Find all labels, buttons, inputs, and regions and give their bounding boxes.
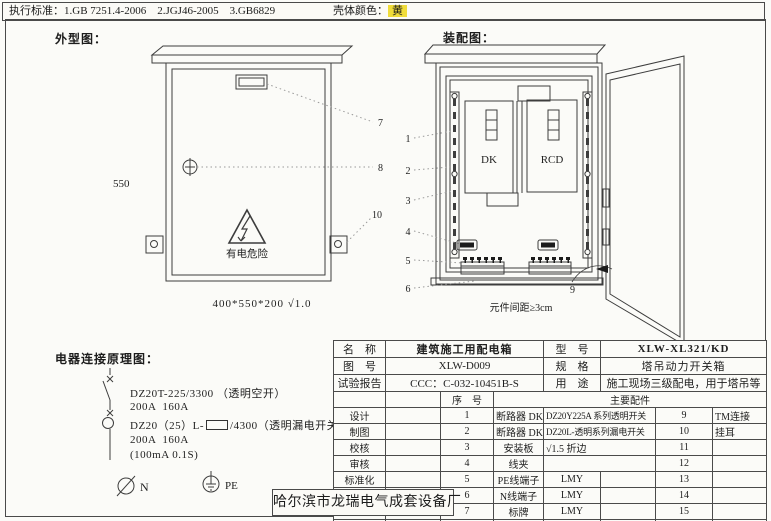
cabinet-roof xyxy=(425,45,605,63)
part-desc: LMY xyxy=(544,504,601,520)
cabinet-door xyxy=(603,56,684,345)
n-terminal-symbol xyxy=(117,476,135,496)
part-no: 4 xyxy=(441,456,494,472)
test-report-value: CCC：C-032-10451B-S xyxy=(386,375,544,392)
leader-lines xyxy=(414,131,475,288)
part-desc: LMY xyxy=(544,488,601,504)
blank-cell xyxy=(386,408,441,424)
blank-cell xyxy=(386,392,441,408)
part-no: 13 xyxy=(656,472,713,488)
test-report-label: 试验报告 xyxy=(334,375,386,392)
part-no: 3 xyxy=(441,440,494,456)
callout-10: 10 xyxy=(372,210,382,221)
schematic-line-1: DZ20T-225/3300 （透明空开） xyxy=(130,385,286,401)
terminal-block-right xyxy=(529,257,571,274)
standards-value: 1.GB 7251.4-2006 2.JGJ46-2005 3.GB6829 xyxy=(64,5,275,17)
schematic-line-3-suffix: /4300（透明漏电开关） xyxy=(230,420,350,432)
part-name: 线夹 xyxy=(494,456,544,472)
callout-2: 2 xyxy=(406,166,411,177)
meter-window xyxy=(236,75,267,89)
callout-7: 7 xyxy=(378,118,383,129)
part-name: 断路器 DK xyxy=(494,424,544,440)
part-desc: √1.5 折边 xyxy=(544,440,656,456)
callout-1: 1 xyxy=(406,134,411,145)
callout-8: 8 xyxy=(378,163,383,174)
part-no: 11 xyxy=(656,440,713,456)
seq-header: 序 号 xyxy=(441,392,494,408)
spacing-note: 元件间距≥3cm xyxy=(490,301,553,314)
middle-rail xyxy=(517,86,550,193)
part-desc xyxy=(713,472,767,488)
height-dimension: 550 xyxy=(113,178,130,190)
table-row: 标准化 5 PE线端子 LMY 13 xyxy=(334,472,767,488)
parts-header: 主要配件 xyxy=(494,392,767,408)
part-name: N线端子 xyxy=(494,488,544,504)
rcd-symbol xyxy=(103,418,114,429)
model-label: 型 号 xyxy=(544,341,601,358)
drawing-no-label: 图 号 xyxy=(334,358,386,375)
shell-color-text: 壳体颜色：黄 xyxy=(333,3,407,20)
manufacturer-name: 哈尔滨市龙瑞电气成套设备厂 xyxy=(272,489,454,516)
blank-cell xyxy=(386,440,441,456)
part-desc: DZ20L-透明系列漏电开关 xyxy=(544,424,656,440)
sign-label: 标准化 xyxy=(334,472,386,488)
part-no: 2 xyxy=(441,424,494,440)
shell-color-value: 黄 xyxy=(388,5,407,17)
table-row: 制图 2 断路器 DK DZ20L-透明系列漏电开关 10 挂耳 xyxy=(334,424,767,440)
size-note: 400*550*200 √1.0 xyxy=(212,298,311,310)
part-desc: LMY xyxy=(544,472,601,488)
table-row: 图 号 XLW-D009 规 格 塔吊动力开关箱 xyxy=(334,358,767,375)
name-value: 建筑施工用配电箱 xyxy=(386,341,544,358)
blank-cell xyxy=(601,472,656,488)
table-row: 名 称 建筑施工用配电箱 型 号 XLW-XL321/KD xyxy=(334,341,767,358)
part-no: 9 xyxy=(656,408,713,424)
blank-cell xyxy=(601,488,656,504)
pe-terminal-symbol xyxy=(203,471,219,492)
schematic-line-2: 200A 160A xyxy=(130,401,189,413)
sign-label: 校核 xyxy=(334,440,386,456)
part-name: 安装板 xyxy=(494,440,544,456)
table-row: 设计 1 断路器 DK DZ20Y225A 系列透明开关 9 TM连接 xyxy=(334,408,767,424)
cable-gland-left xyxy=(457,240,477,250)
part-desc xyxy=(713,504,767,520)
table-row: 校核 3 安装板 √1.5 折边 11 xyxy=(334,440,767,456)
table-row: 序 号 主要配件 xyxy=(334,392,767,408)
blank-cell xyxy=(386,456,441,472)
lock-icon xyxy=(183,158,197,176)
part-no: 15 xyxy=(656,504,713,520)
part-desc xyxy=(713,488,767,504)
drawing-sheet: 执行标准：1.GB 7251.4-2006 2.JGJ46-2005 3.GB6… xyxy=(0,0,771,521)
table-row: 审核 4 线夹 12 xyxy=(334,456,767,472)
callout-6: 6 xyxy=(406,284,411,295)
busbar-symbol xyxy=(206,420,228,430)
table-row: 试验报告 CCC：C-032-10451B-S 用 途 施工现场三级配电，用于塔… xyxy=(334,375,767,392)
callout-4: 4 xyxy=(406,227,411,238)
dk-label: DK xyxy=(481,154,497,166)
blank-cell xyxy=(601,504,656,520)
blank-cell xyxy=(386,472,441,488)
rcd-label: RCD xyxy=(541,154,564,166)
cabinet-roof xyxy=(152,46,352,63)
part-name: 断路器 DK xyxy=(494,408,544,424)
n-label: N xyxy=(140,480,149,494)
standards-text: 执行标准：1.GB 7251.4-2006 2.JGJ46-2005 3.GB6… xyxy=(9,3,275,20)
callout-3: 3 xyxy=(406,196,411,207)
outline-drawing: 有电危险 550 400*550*200 √1.0 7 8 10 xyxy=(95,39,395,339)
warning-triangle-icon xyxy=(229,210,265,243)
shell-color-label: 壳体颜色： xyxy=(333,5,388,17)
warning-text: 有电危险 xyxy=(226,247,268,260)
schematic-line-5: (100mA 0.1S) xyxy=(130,449,198,461)
schematic-line-3: DZ20（25）L-/4300（透明漏电开关） xyxy=(130,417,350,433)
breaker-symbol xyxy=(103,368,114,460)
part-desc: 挂耳 xyxy=(713,424,767,440)
usage-label: 用 途 xyxy=(544,375,601,392)
usage-value: 施工现场三级配电，用于塔吊等 xyxy=(601,375,767,392)
part-no: 12 xyxy=(656,456,713,472)
part-desc xyxy=(713,440,767,456)
part-no: 14 xyxy=(656,488,713,504)
part-name: 标牌 xyxy=(494,504,544,520)
busbar-link xyxy=(518,86,550,101)
part-desc: TM连接 xyxy=(713,408,767,424)
terminal-block-left xyxy=(461,257,504,274)
spec-value: 塔吊动力开关箱 xyxy=(601,358,767,375)
blank-cell xyxy=(334,392,386,408)
schematic-line-3-prefix: DZ20（25）L- xyxy=(130,420,204,432)
sign-label: 审核 xyxy=(334,456,386,472)
part-no: 1 xyxy=(441,408,494,424)
sign-label: 制图 xyxy=(334,424,386,440)
part-name: PE线端子 xyxy=(494,472,544,488)
spec-label: 规 格 xyxy=(544,358,601,375)
name-label: 名 称 xyxy=(334,341,386,358)
assembly-drawing: DK RCD xyxy=(400,39,705,349)
callout-9: 9 xyxy=(570,285,575,296)
model-value: XLW-XL321/KD xyxy=(601,341,767,358)
sign-label: 设计 xyxy=(334,408,386,424)
part-desc xyxy=(713,456,767,472)
din-rail-right xyxy=(583,92,592,258)
mounting-tab-right xyxy=(330,236,347,253)
rcd-breaker xyxy=(527,100,577,192)
standards-label: 执行标准： xyxy=(9,5,64,17)
callout-5: 5 xyxy=(406,256,411,267)
schematic-line-4: 200A 160A xyxy=(130,434,189,446)
part-no: 10 xyxy=(656,424,713,440)
part-desc xyxy=(544,456,656,472)
part-desc: DZ20Y225A 系列透明开关 xyxy=(544,408,656,424)
pe-label: PE xyxy=(225,480,238,492)
part-no: 5 xyxy=(441,472,494,488)
mounting-tab-left xyxy=(146,236,163,253)
drawing-no-value: XLW-D009 xyxy=(386,358,544,375)
leader-lines xyxy=(197,84,373,242)
din-rail-left xyxy=(450,92,459,258)
cable-gland-right xyxy=(538,240,558,250)
blank-cell xyxy=(386,424,441,440)
